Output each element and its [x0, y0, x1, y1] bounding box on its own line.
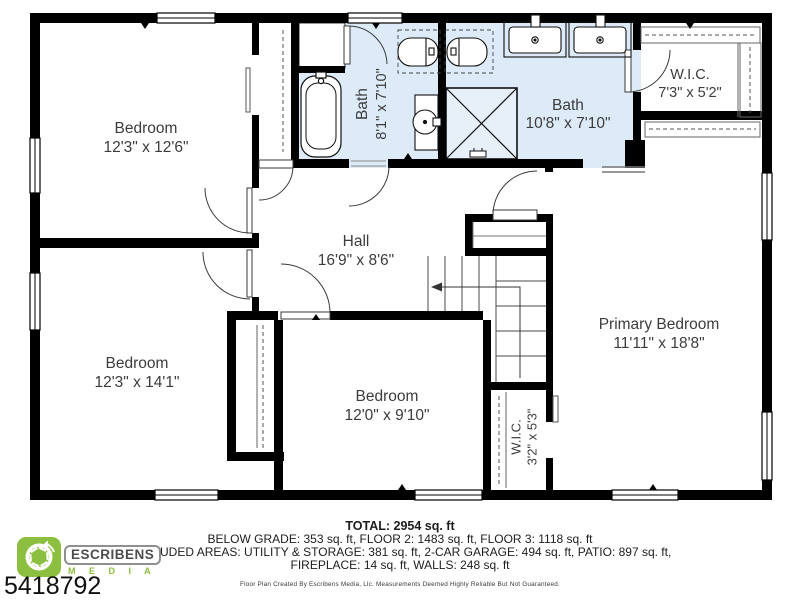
linen-closet	[297, 23, 345, 73]
listing-number: 5418792	[4, 572, 101, 601]
room-name: Bedroom	[115, 120, 178, 137]
bathtub-fixture	[301, 72, 341, 157]
floor-plan-page: { "plan": { "rooms": [ {"id": "bedroom-t…	[0, 0, 800, 600]
room-name: Bedroom	[106, 355, 169, 372]
logo-wordmark: ESCRIBENS	[64, 545, 161, 565]
room-name: Primary Bedroom	[599, 316, 720, 333]
room-label-wic-small: W.I.C. 3'2" x 5'3"	[508, 408, 539, 465]
window	[348, 13, 402, 23]
room-label-bedroom-bottom-middle: Bedroom 12'0" x 9'10"	[344, 388, 429, 424]
room-label-wic-top-right: W.I.C. 7'3" x 5'2"	[658, 67, 721, 101]
window	[762, 173, 772, 240]
room-dims: 12'3" x 14'1"	[94, 374, 179, 391]
room-dims: 12'3" x 12'6"	[103, 139, 188, 156]
floor-plan-drawing: Bedroom 12'3" x 12'6" Bedroom 12'3" x 14…	[0, 0, 800, 520]
room-name: Bath	[354, 88, 371, 120]
window	[30, 273, 40, 330]
window	[30, 138, 40, 193]
stair-direction-arrow	[431, 283, 442, 292]
room-name: W.I.C.	[508, 419, 523, 454]
room-label-bedroom-bottom-left: Bedroom 12'3" x 14'1"	[94, 355, 179, 391]
room-name: W.I.C.	[670, 67, 709, 83]
room-name: Bath	[552, 97, 584, 114]
window	[612, 490, 678, 500]
room-dims: 11'11" x 18'8"	[613, 335, 704, 352]
disclaimer-text: Floor Plan Created By Escribens Media, L…	[0, 578, 800, 591]
room-name: Bedroom	[356, 388, 419, 405]
room-dims: 16'9" x 8'6"	[318, 252, 394, 269]
room-dims: 12'0" x 9'10"	[344, 407, 429, 424]
window	[415, 490, 482, 500]
window	[157, 13, 215, 23]
window	[762, 412, 772, 480]
shower-fixture	[446, 88, 517, 159]
room-dims: 8'1" x 7'10"	[374, 68, 390, 139]
room-label-bedroom-top-left: Bedroom 12'3" x 12'6"	[103, 120, 188, 156]
window	[155, 490, 218, 500]
room-dims: 3'2" x 5'3"	[524, 408, 539, 465]
room-label-hall: Hall 16'9" x 8'6"	[318, 233, 394, 269]
room-dims: 10'8" x 7'10"	[525, 115, 610, 132]
pedestal-sink-fixture	[413, 95, 441, 150]
room-dims: 7'3" x 5'2"	[658, 85, 721, 101]
room-name: Hall	[343, 233, 370, 250]
room-label-primary-bedroom: Primary Bedroom 11'11" x 18'8"	[599, 316, 720, 352]
